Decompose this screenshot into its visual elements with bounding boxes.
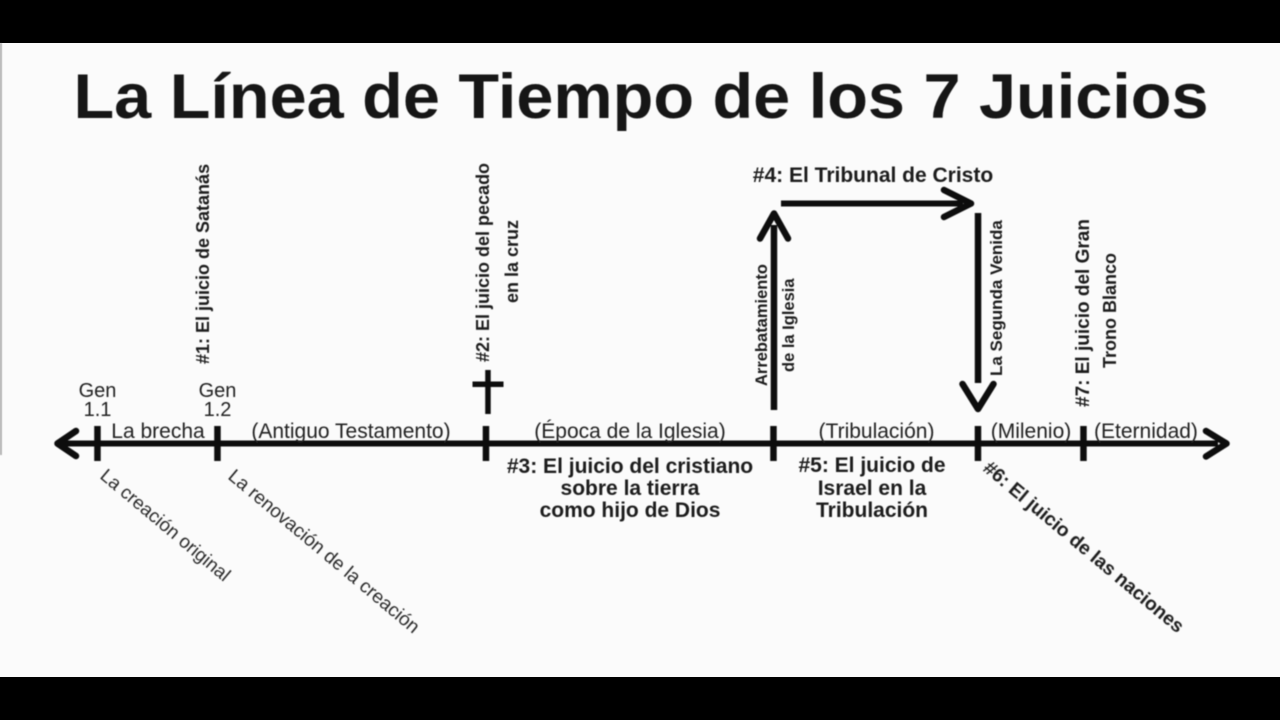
svg-text:(Eternidad): (Eternidad)	[1094, 420, 1198, 443]
svg-text:La brecha: La brecha	[111, 420, 205, 443]
svg-text:en la cruz: en la cruz	[502, 220, 522, 303]
svg-text:(Milenio): (Milenio)	[991, 420, 1072, 443]
svg-text:(Tribulación): (Tribulación)	[819, 420, 935, 443]
svg-text:(Antiguo Testamento): (Antiguo Testamento)	[251, 420, 450, 443]
svg-text:#5: El juicio de: #5: El juicio de	[798, 454, 945, 477]
svg-text:Arrebatamiento: Arrebatamiento	[753, 264, 771, 386]
svg-text:de la Iglesia: de la Iglesia	[780, 278, 798, 372]
svg-text:La Línea de Tiempo de los 7 Ju: La Línea de Tiempo de los 7 Juicios	[74, 62, 1209, 132]
svg-text:1.2: 1.2	[204, 399, 232, 421]
svg-text:Trono Blanco: Trono Blanco	[1100, 253, 1120, 368]
svg-text:#7: El juicio del Gran: #7: El juicio del Gran	[1073, 219, 1094, 407]
svg-text:Tribulación: Tribulación	[816, 499, 928, 522]
svg-text:#4: El Tribunal de Cristo: #4: El Tribunal de Cristo	[753, 164, 993, 187]
svg-text:Israel en la: Israel en la	[818, 477, 927, 500]
svg-text:(Época de la Iglesia): (Época de la Iglesia)	[534, 420, 725, 443]
svg-text:#1: El juicio de Satanás: #1: El juicio de Satanás	[193, 164, 213, 364]
svg-text:#2: El juicio del pecado: #2: El juicio del pecado	[473, 163, 493, 362]
svg-text:#3: El juicio del cristiano: #3: El juicio del cristiano	[507, 455, 753, 478]
svg-text:como hijo de Dios: como hijo de Dios	[540, 499, 721, 522]
svg-text:1.1: 1.1	[84, 399, 112, 421]
svg-text:La Segunda Venida: La Segunda Venida	[987, 220, 1006, 376]
svg-text:sobre la tierra: sobre la tierra	[561, 477, 700, 500]
